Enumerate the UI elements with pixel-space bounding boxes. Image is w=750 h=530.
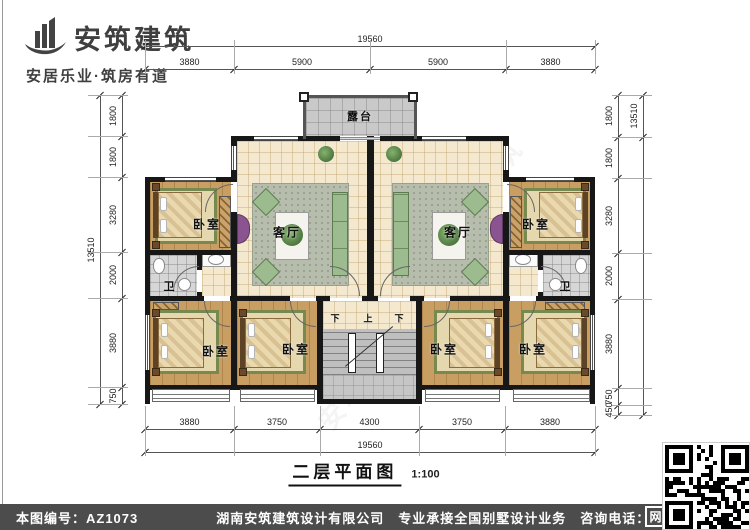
dimension-line — [100, 95, 101, 404]
terrace-door-threshold — [340, 137, 380, 140]
floor-plan-drawing: 1956038805900590038803880375043003750388… — [0, 0, 750, 530]
wall — [317, 399, 422, 404]
bed-pillow — [248, 323, 255, 337]
extension-line — [612, 415, 652, 416]
wall — [145, 296, 204, 301]
bed-headboard — [583, 192, 588, 238]
nightstand — [239, 368, 247, 376]
dimension-label: 4300 — [359, 417, 379, 427]
extension-line — [370, 40, 371, 74]
bay-window-sill — [152, 389, 230, 402]
dimension-label: 2000 — [108, 265, 118, 285]
dimension-label: 3880 — [604, 333, 614, 353]
dimension-label: 1800 — [108, 105, 118, 125]
sofa — [393, 192, 409, 276]
wall — [450, 296, 510, 301]
bed-pillow — [575, 219, 582, 233]
bedroom-bottom-4-label: 卧室 — [519, 341, 547, 358]
extension-line — [612, 253, 652, 254]
dimension-label: 1800 — [604, 147, 614, 167]
extension-line — [612, 178, 652, 179]
wall — [231, 301, 237, 385]
wall — [145, 250, 234, 255]
bed-pillow — [572, 323, 579, 337]
wall — [234, 136, 254, 141]
wall — [503, 212, 509, 298]
sink — [208, 254, 224, 265]
wardrobe — [545, 302, 585, 310]
dimension-label: 3750 — [452, 417, 472, 427]
extension-line — [612, 299, 652, 300]
dimension-label: 3880 — [179, 417, 199, 427]
wall — [367, 136, 374, 296]
bedroom-bottom-2-label: 卧室 — [282, 341, 310, 358]
sink — [515, 254, 531, 265]
window — [254, 136, 298, 141]
bedroom-bottom-1-label: 卧室 — [202, 343, 230, 360]
nightstand — [494, 368, 502, 376]
wall — [362, 296, 378, 301]
stair-steps — [323, 329, 416, 375]
wall — [230, 296, 290, 301]
dimension-label: 1800 — [604, 106, 614, 126]
terrace-post — [408, 92, 418, 102]
window — [590, 315, 595, 370]
wall — [503, 301, 509, 385]
wall — [145, 177, 150, 252]
nightstand — [239, 309, 247, 317]
dimension-label: 13510 — [86, 237, 96, 262]
wall — [590, 252, 595, 298]
stair-up-label: 上 — [363, 312, 374, 325]
window — [165, 177, 216, 182]
extension-line — [595, 406, 596, 456]
extension-line — [88, 95, 128, 96]
dimension-label: 5900 — [428, 57, 448, 67]
toilet — [153, 258, 165, 274]
bed-headboard — [582, 318, 587, 368]
wall — [466, 136, 506, 141]
bedroom-bottom-3-label: 卧室 — [430, 341, 458, 358]
service-text: 专业承接全国别墅设计业务 — [398, 508, 566, 527]
terrace-railing — [303, 95, 417, 98]
dimension-label: 3280 — [604, 205, 614, 225]
bed-pillow — [485, 323, 492, 337]
bed-pillow — [160, 197, 167, 211]
wall — [506, 177, 526, 182]
extension-line — [145, 406, 146, 456]
extension-line — [145, 40, 146, 74]
dimension-line — [145, 429, 595, 430]
wall — [145, 252, 150, 298]
drawing-title: 二层平面图 — [288, 458, 401, 487]
dimension-label: 3880 — [179, 57, 199, 67]
bed-headboard — [495, 318, 500, 368]
plant — [318, 146, 334, 162]
bedroom-top-right-label: 卧室 — [522, 216, 550, 233]
bed-pillow — [160, 219, 167, 233]
dimension-label: 3750 — [267, 417, 287, 427]
window — [503, 146, 509, 170]
dimension-label: 5900 — [292, 57, 312, 67]
dimension-label: 13510 — [629, 103, 639, 128]
nightstand — [152, 183, 160, 191]
terrace-post — [299, 92, 309, 102]
window — [526, 177, 574, 182]
nightstand — [581, 368, 589, 376]
dimension-label: 2000 — [604, 266, 614, 286]
extension-line — [612, 95, 652, 96]
extension-line — [419, 406, 420, 456]
extension-line — [595, 40, 596, 74]
bathroom-right-label: 卫 — [560, 278, 573, 294]
extension-line — [320, 406, 321, 456]
nightstand — [152, 309, 160, 317]
bay-window-sill — [240, 389, 315, 402]
living-room-left-label: 客厅 — [273, 224, 301, 241]
extension-line — [88, 177, 128, 178]
wall — [506, 250, 595, 255]
nightstand — [494, 309, 502, 317]
nightstand — [581, 309, 589, 317]
extension-line — [234, 406, 235, 456]
bed-pillow — [572, 345, 579, 359]
wall — [536, 296, 595, 301]
window — [145, 315, 150, 370]
nightstand — [581, 183, 589, 191]
extension-line — [505, 406, 506, 456]
extension-line — [88, 136, 128, 137]
extension-line — [88, 387, 128, 388]
drawing-scale: 1:100 — [411, 469, 439, 481]
bed-pillow — [575, 197, 582, 211]
sofa — [332, 192, 348, 276]
extension-line — [506, 40, 507, 74]
wall — [590, 177, 595, 252]
extension-line — [612, 137, 652, 138]
wall — [231, 212, 237, 298]
bed-pillow — [161, 345, 168, 359]
bay-window-sill — [425, 389, 500, 402]
stair-down-left-label: 下 — [330, 312, 341, 325]
nightstand — [152, 368, 160, 376]
dimension-label: 3280 — [108, 204, 118, 224]
dimension-label: 3880 — [540, 57, 560, 67]
stair-landing — [323, 375, 416, 399]
window — [422, 136, 466, 141]
dimension-line — [145, 452, 595, 453]
dimension-label: 3880 — [108, 332, 118, 352]
floor-plan-page: 安筑建筑 安居乐业·筑房有道 安筑建筑 安筑建筑 安筑建筑 1956038805… — [0, 0, 750, 530]
terrace-label: 露台 — [347, 108, 373, 124]
extension-line — [88, 252, 128, 253]
bedroom-top-left-label: 卧室 — [193, 216, 221, 233]
drawing-title-block: 二层平面图 1:100 — [288, 458, 439, 487]
dimension-line — [618, 95, 619, 415]
dimension-line — [643, 95, 644, 415]
extension-line — [612, 405, 652, 406]
extension-line — [88, 404, 128, 405]
stair-rail — [348, 333, 356, 373]
bay-window-sill — [513, 389, 590, 402]
bed-pillow — [248, 345, 255, 359]
nightstand — [152, 241, 160, 249]
toilet — [575, 258, 587, 274]
bed-pillow — [161, 323, 168, 337]
footer-bar: 本图编号：AZ1073 湖南安筑建筑设计有限公司 专业承接全国别墅设计业务 咨询… — [0, 504, 750, 530]
extension-line — [88, 298, 128, 299]
drawing-number: 本图编号：AZ1073 — [16, 508, 138, 527]
living-room-right-label: 客厅 — [444, 224, 472, 241]
dimension-label: 1800 — [108, 146, 118, 166]
bed-pillow — [485, 345, 492, 359]
window — [231, 146, 237, 170]
dimension-label: 750 — [108, 388, 118, 403]
extension-line — [612, 388, 652, 389]
plant — [386, 146, 402, 162]
qr-code — [662, 442, 750, 530]
stair-down-right-label: 下 — [394, 312, 405, 325]
company-name: 湖南安筑建筑设计有限公司 — [216, 508, 384, 527]
dimension-label: 19560 — [357, 440, 382, 450]
nightstand — [581, 241, 589, 249]
dimension-label: 3880 — [540, 417, 560, 427]
bathroom-left-label: 卫 — [164, 278, 177, 294]
extension-line — [234, 40, 235, 74]
